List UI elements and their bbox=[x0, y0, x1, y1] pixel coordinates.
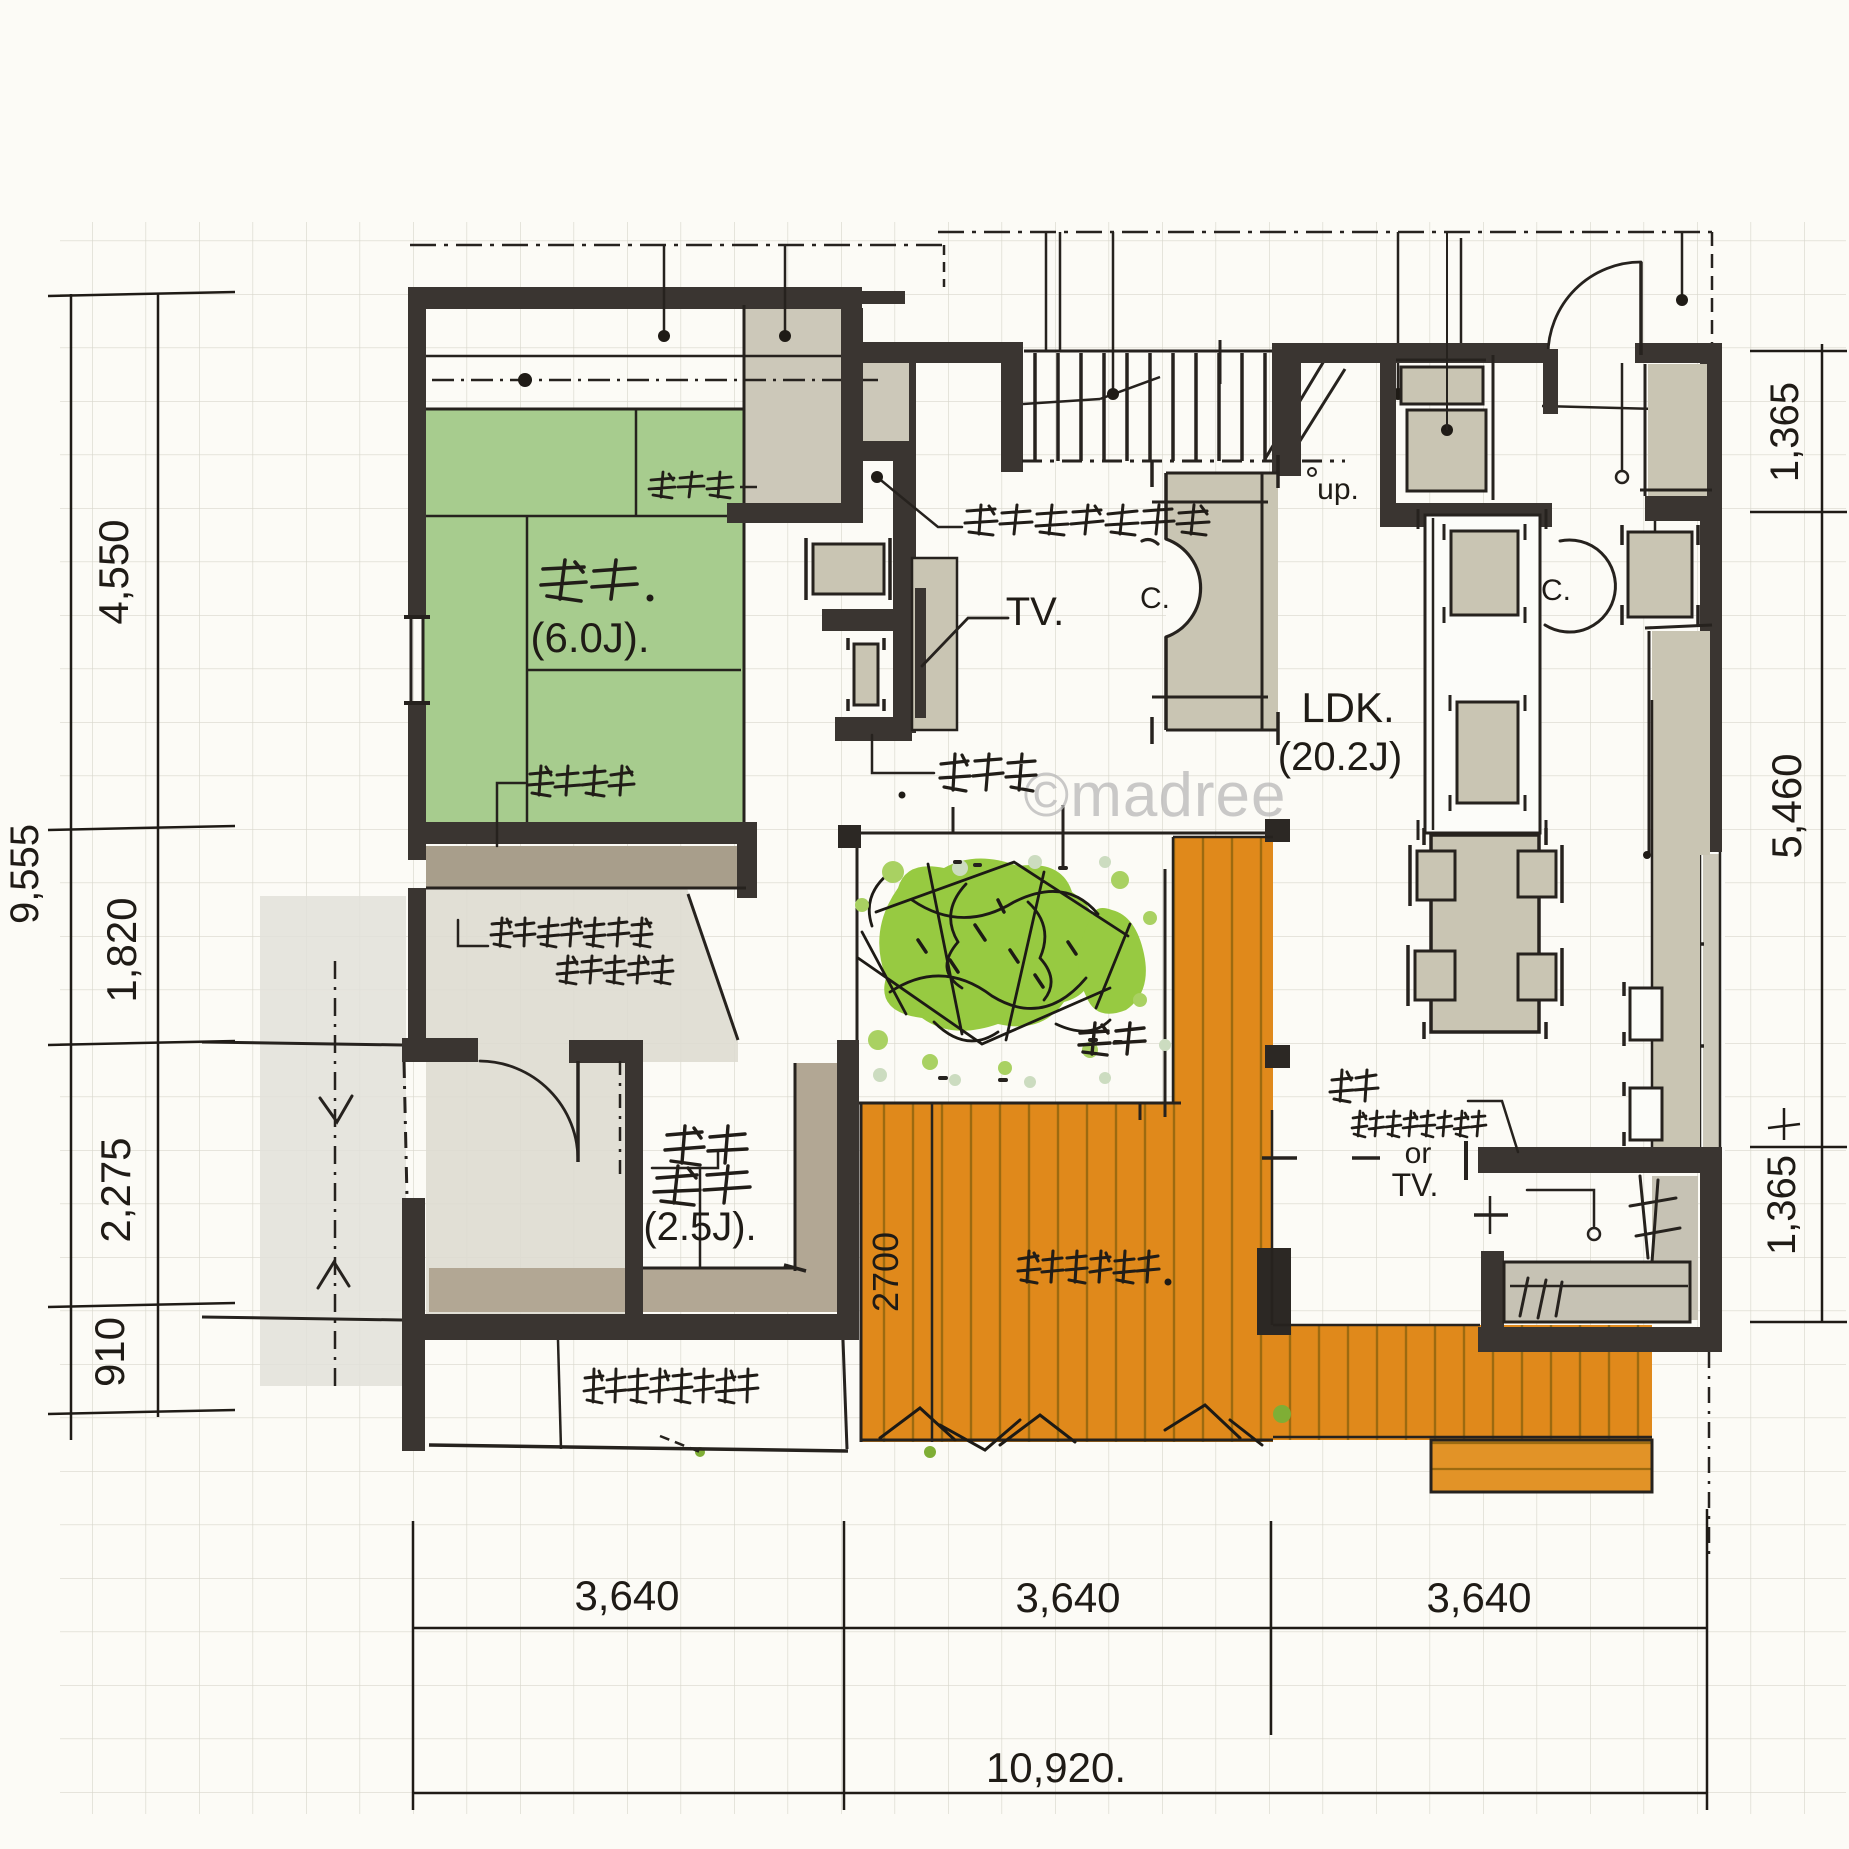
svg-text:910: 910 bbox=[86, 1317, 133, 1387]
svg-text:C.: C. bbox=[1541, 574, 1571, 607]
svg-text:10,920.: 10,920. bbox=[986, 1744, 1126, 1791]
svg-text:TV.: TV. bbox=[1006, 590, 1065, 634]
svg-text:C.: C. bbox=[1140, 582, 1170, 615]
svg-text:3,640: 3,640 bbox=[1426, 1574, 1531, 1621]
svg-text:1,820: 1,820 bbox=[98, 897, 145, 1002]
svg-text:2700: 2700 bbox=[865, 1232, 906, 1312]
svg-text:1,365: 1,365 bbox=[1763, 382, 1807, 482]
svg-text:(20.2J): (20.2J) bbox=[1278, 735, 1403, 779]
svg-text:1,365: 1,365 bbox=[1760, 1155, 1804, 1255]
svg-text:TV.: TV. bbox=[1392, 1167, 1439, 1203]
svg-text:2,275: 2,275 bbox=[92, 1137, 139, 1242]
svg-text:(2.5J).: (2.5J). bbox=[643, 1205, 756, 1249]
svg-text:©madree: ©madree bbox=[1024, 761, 1287, 830]
svg-text:4,550: 4,550 bbox=[90, 519, 137, 624]
svg-text:(6.0J).: (6.0J). bbox=[530, 614, 649, 661]
svg-text:3,640: 3,640 bbox=[574, 1572, 679, 1619]
svg-text:up.: up. bbox=[1317, 473, 1359, 506]
svg-text:9,555: 9,555 bbox=[3, 824, 47, 924]
svg-text:LDK.: LDK. bbox=[1301, 684, 1394, 731]
svg-text:3,640: 3,640 bbox=[1015, 1574, 1120, 1621]
svg-text:5,460: 5,460 bbox=[1763, 753, 1810, 858]
svg-text:or: or bbox=[1405, 1137, 1432, 1170]
